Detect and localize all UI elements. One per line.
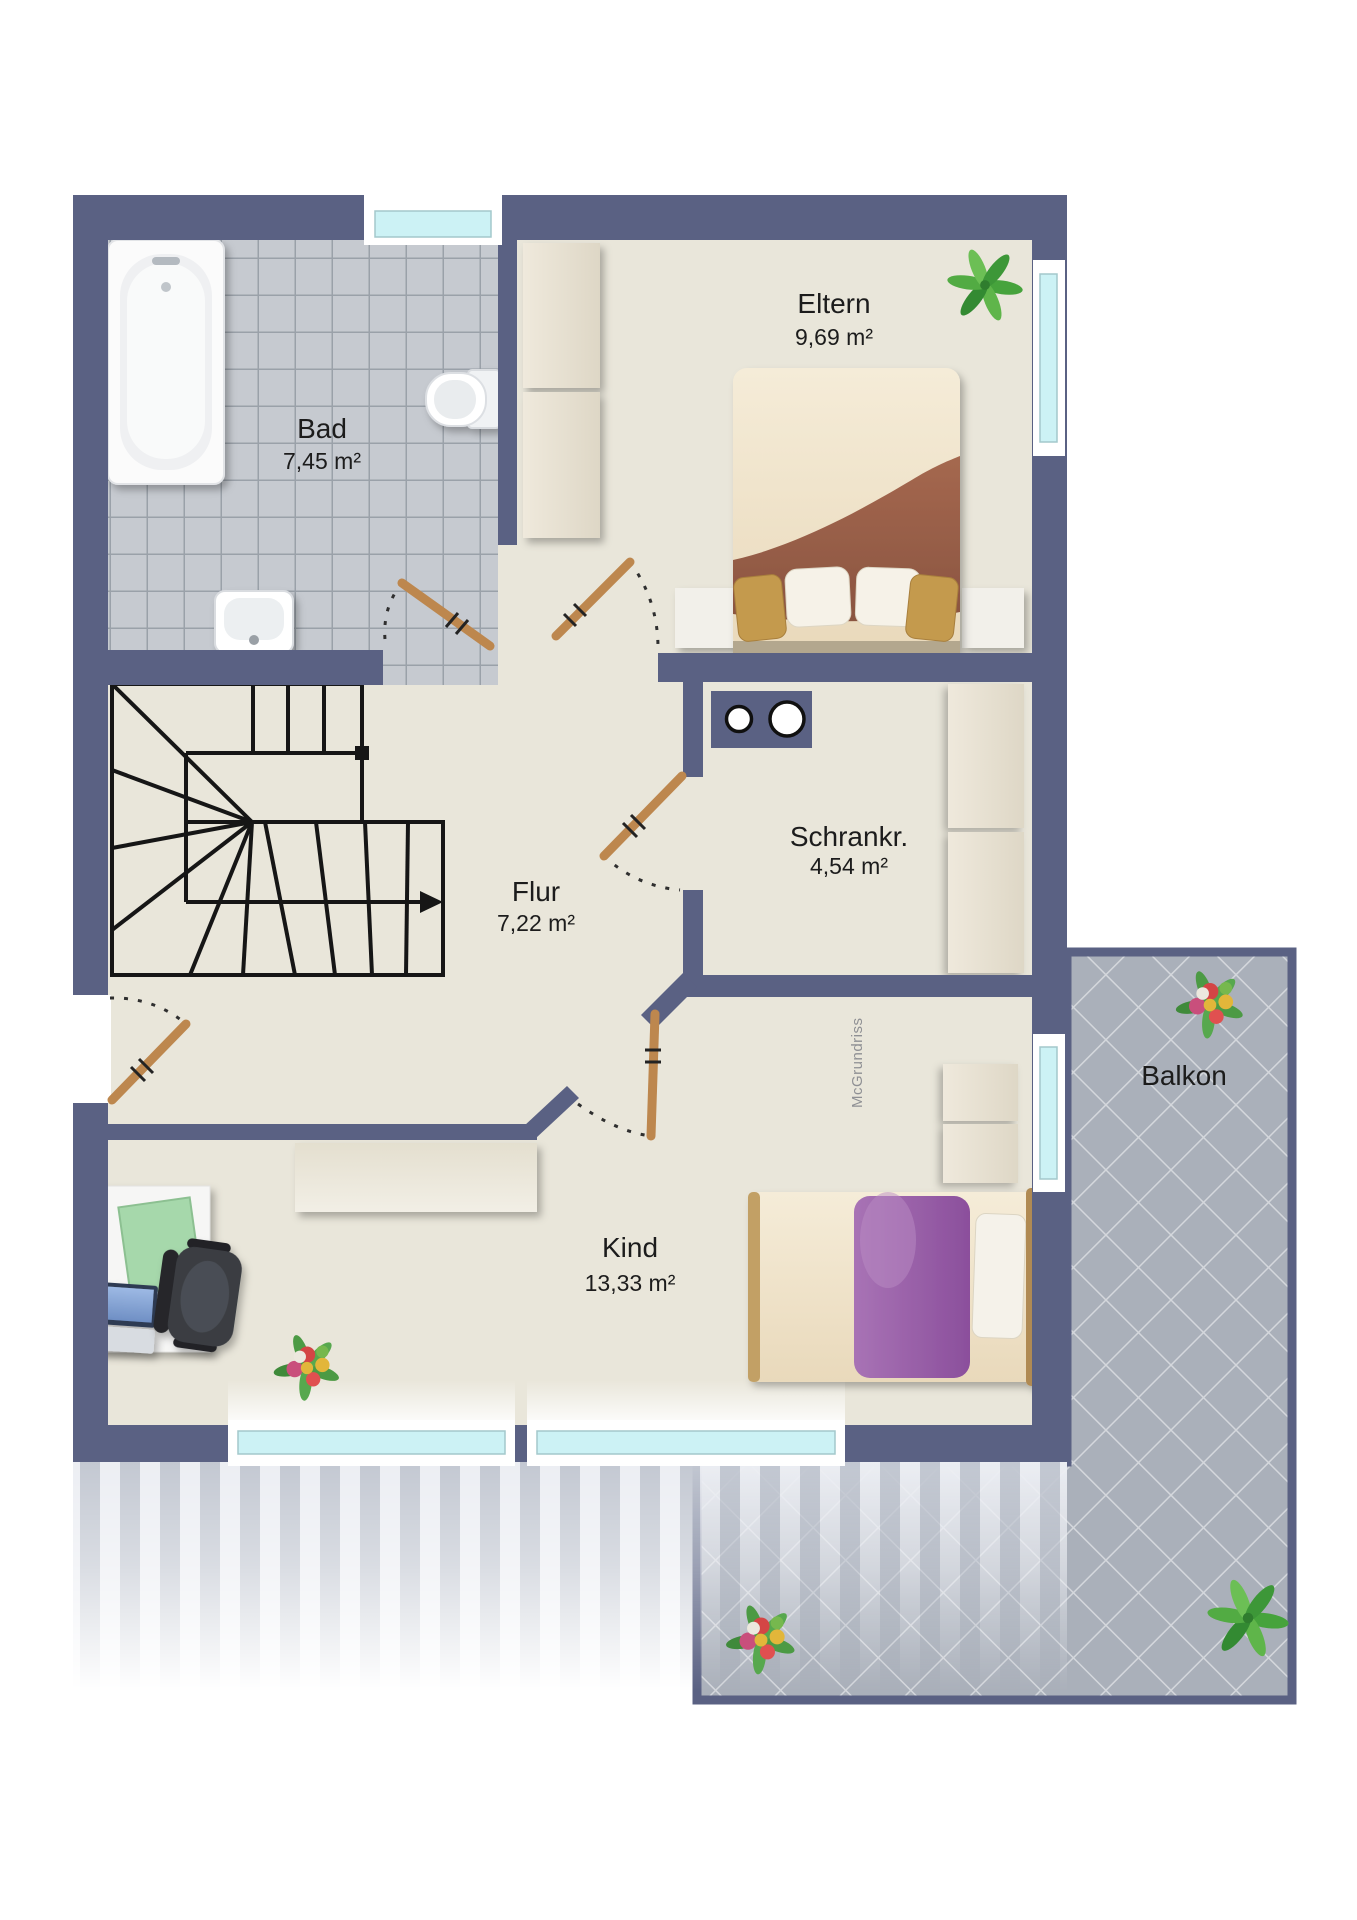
room-area-kind: 13,33 m² (585, 1270, 676, 1296)
wall-top (73, 195, 1067, 240)
washer-dryer (711, 691, 812, 748)
stairs-start-marker (355, 746, 369, 760)
watermark: McGrundriss (849, 1017, 866, 1108)
floorplan-svg: Bad 7,45 m² Eltern 9,69 m² Flur 7,22 m² … (0, 0, 1357, 1920)
room-area-schrankraum: 4,54 m² (810, 853, 888, 879)
room-label-kind: Kind (602, 1232, 658, 1263)
window-reveal-right (527, 1380, 845, 1425)
room-area-eltern: 9,69 m² (795, 324, 873, 350)
window-kind-bottom-left (228, 1420, 515, 1466)
left-wall-opening (70, 995, 111, 1103)
toilet (426, 370, 500, 428)
wall-eltern-bottom (658, 653, 1032, 682)
window-eltern (1033, 260, 1065, 456)
window-kind-right (1033, 1034, 1065, 1192)
wall-flur-kind (108, 1124, 537, 1140)
shelf-kind (295, 1143, 537, 1212)
sink (215, 591, 293, 653)
bad-floor-tiles-door (383, 240, 498, 685)
window-reveal-left (228, 1380, 515, 1425)
room-label-schrankraum: Schrankr. (790, 821, 908, 852)
window-bad (364, 193, 502, 245)
roof-stripe-area (73, 1462, 1067, 1702)
room-label-balkon: Balkon (1141, 1060, 1227, 1091)
bathtub (108, 240, 224, 484)
nightstand-left (675, 588, 737, 648)
floorplan-page: Bad 7,45 m² Eltern 9,69 m² Flur 7,22 m² … (0, 0, 1357, 1920)
wall-left (73, 195, 108, 1462)
sink-faucet-icon (249, 635, 259, 645)
single-bed (748, 1188, 1042, 1386)
room-label-eltern: Eltern (797, 288, 870, 319)
room-area-flur: 7,22 m² (497, 910, 575, 936)
window-kind-bottom-right (527, 1420, 845, 1466)
tub-faucet-icon (152, 257, 180, 265)
nightstand-right (962, 588, 1024, 648)
wall-schrank-stub1 (683, 682, 703, 777)
room-label-flur: Flur (512, 876, 560, 907)
wall-bad-eltern (498, 195, 517, 545)
wall-schrank-bottom (683, 975, 1032, 997)
wall-schrank-stub2 (683, 890, 703, 978)
wall-bad-bottom (108, 650, 383, 685)
room-area-bad: 7,45 m² (283, 448, 361, 474)
double-bed (733, 368, 960, 653)
room-label-bad: Bad (297, 413, 347, 444)
